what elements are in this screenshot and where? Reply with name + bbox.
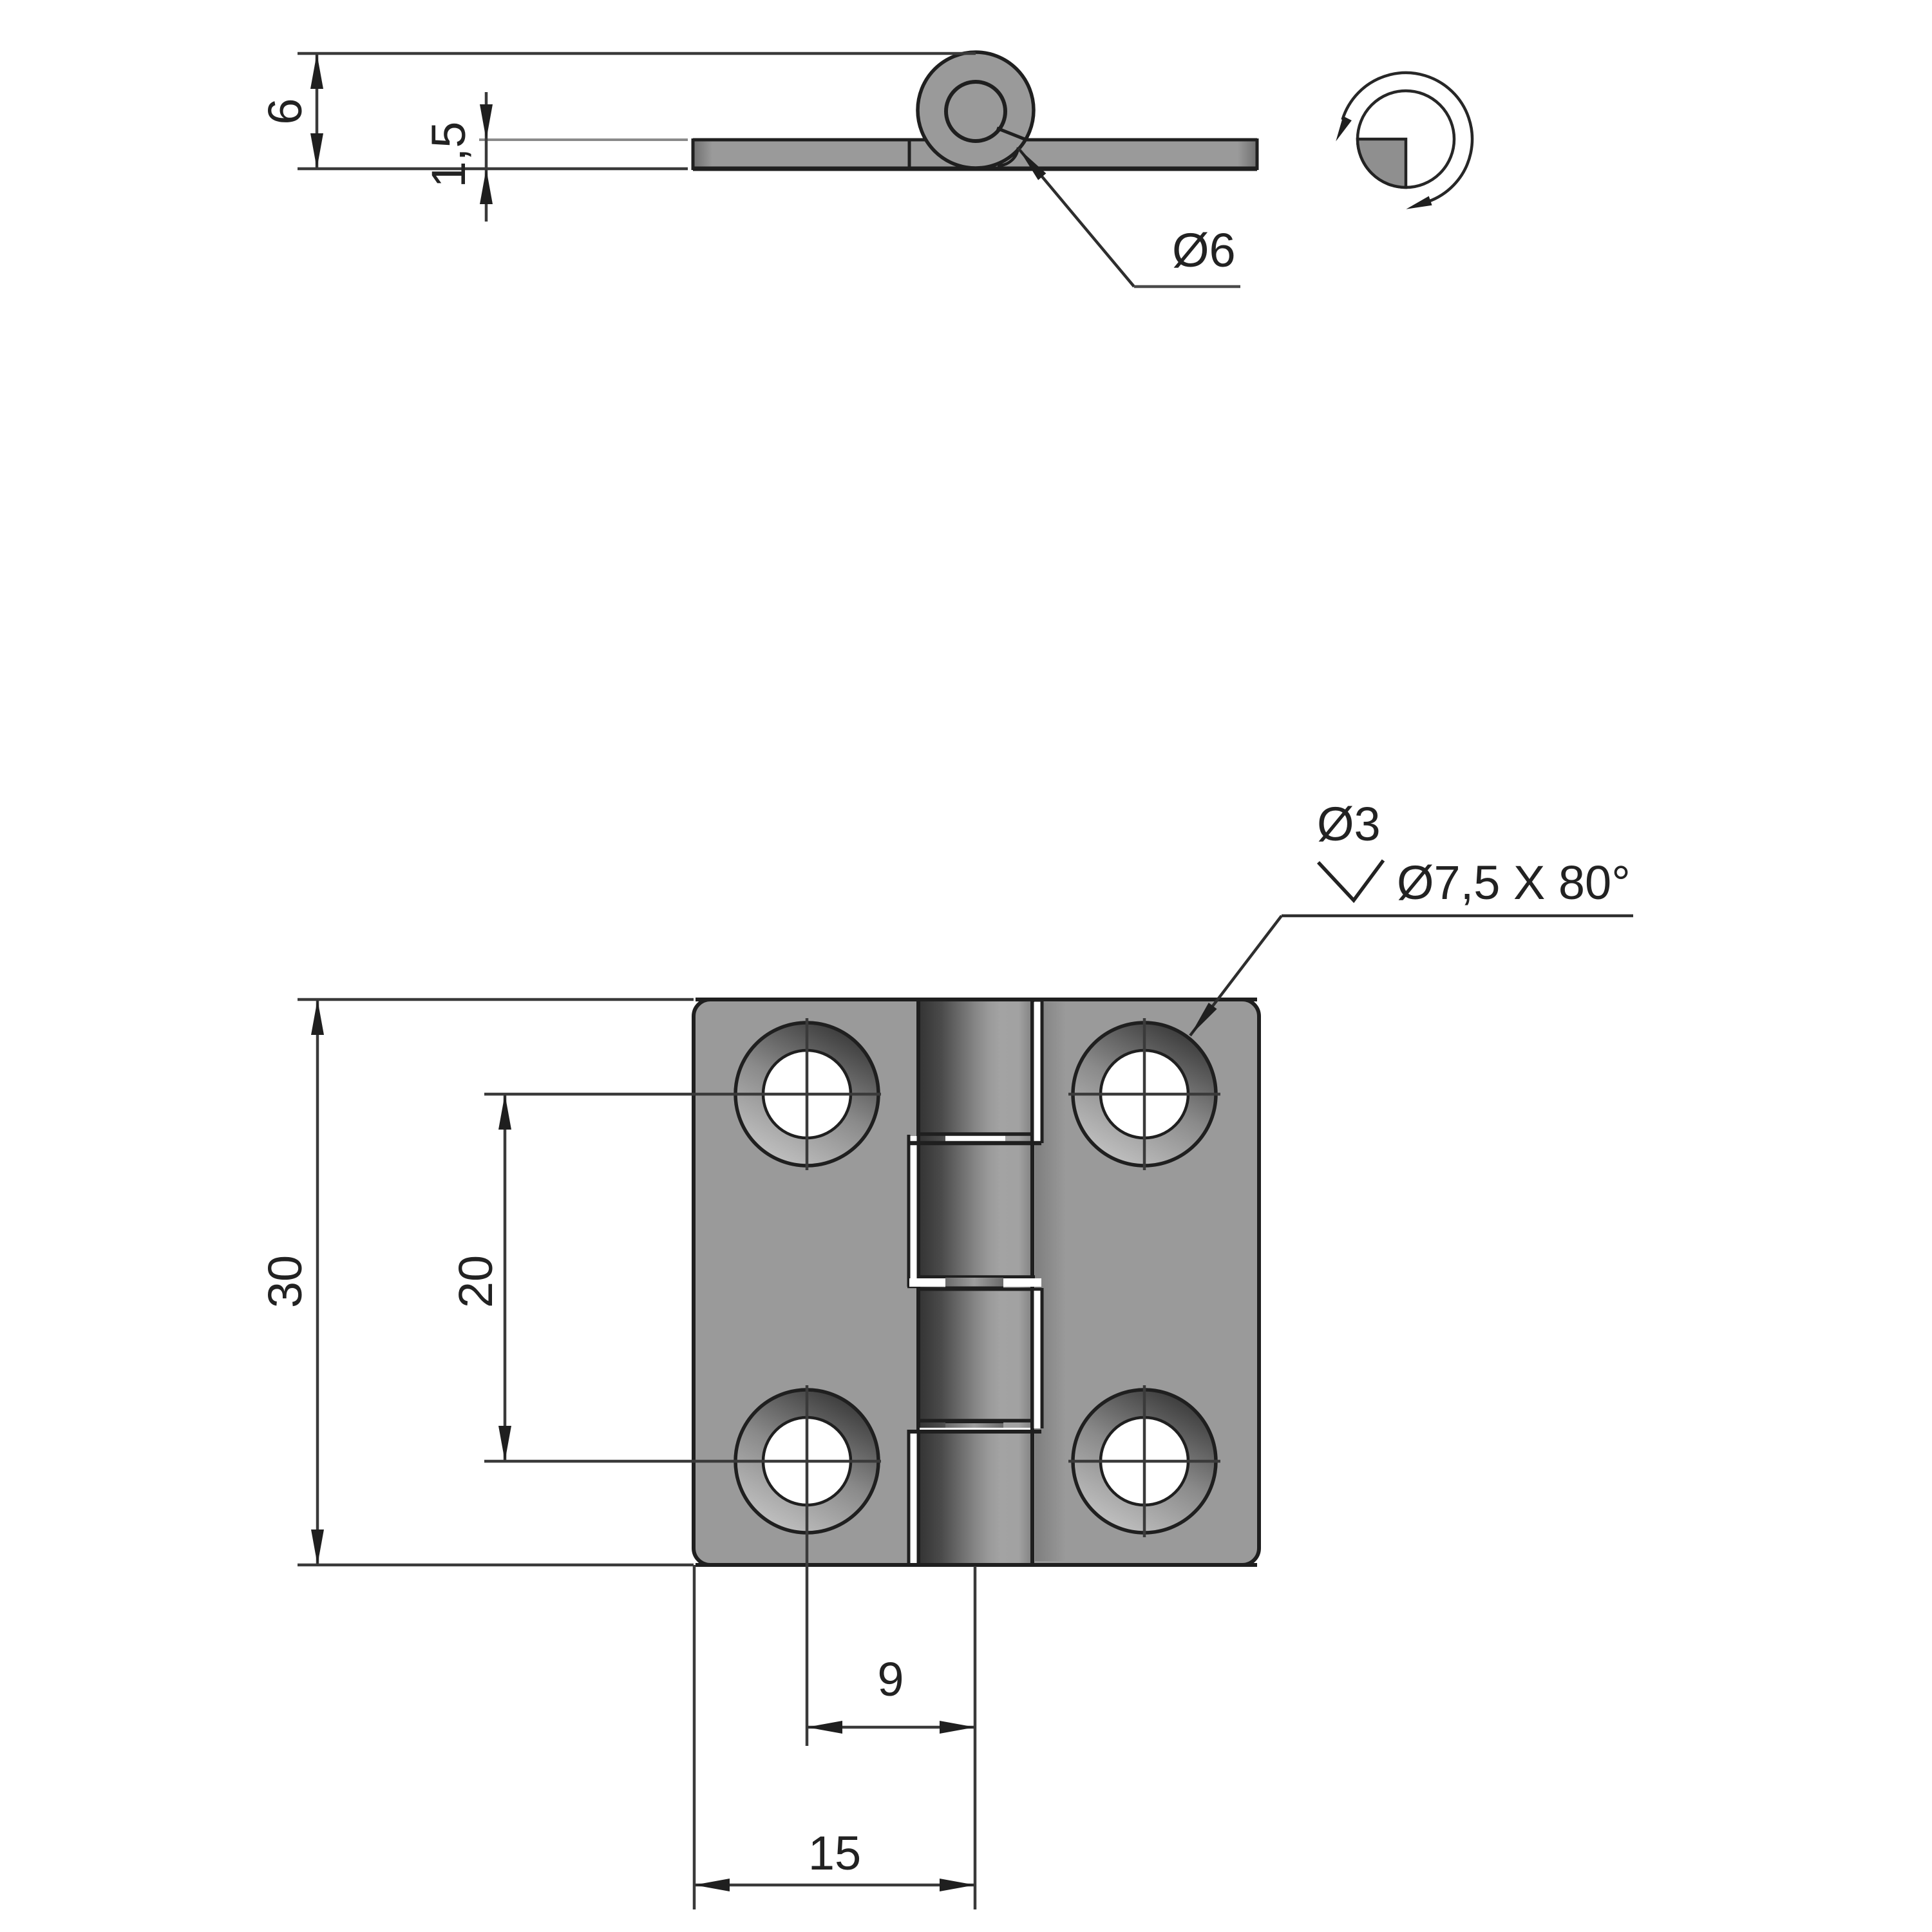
svg-text:6: 6 [258, 98, 312, 124]
svg-text:15: 15 [808, 1826, 861, 1880]
svg-text:1,5: 1,5 [422, 122, 475, 188]
svg-text:Ø7,5 X 80°: Ø7,5 X 80° [1397, 856, 1631, 909]
svg-text:Ø6: Ø6 [1172, 223, 1236, 277]
svg-text:20: 20 [449, 1255, 502, 1308]
svg-text:9: 9 [877, 1653, 904, 1706]
svg-text:Ø3: Ø3 [1317, 797, 1381, 851]
svg-text:30: 30 [258, 1255, 312, 1308]
